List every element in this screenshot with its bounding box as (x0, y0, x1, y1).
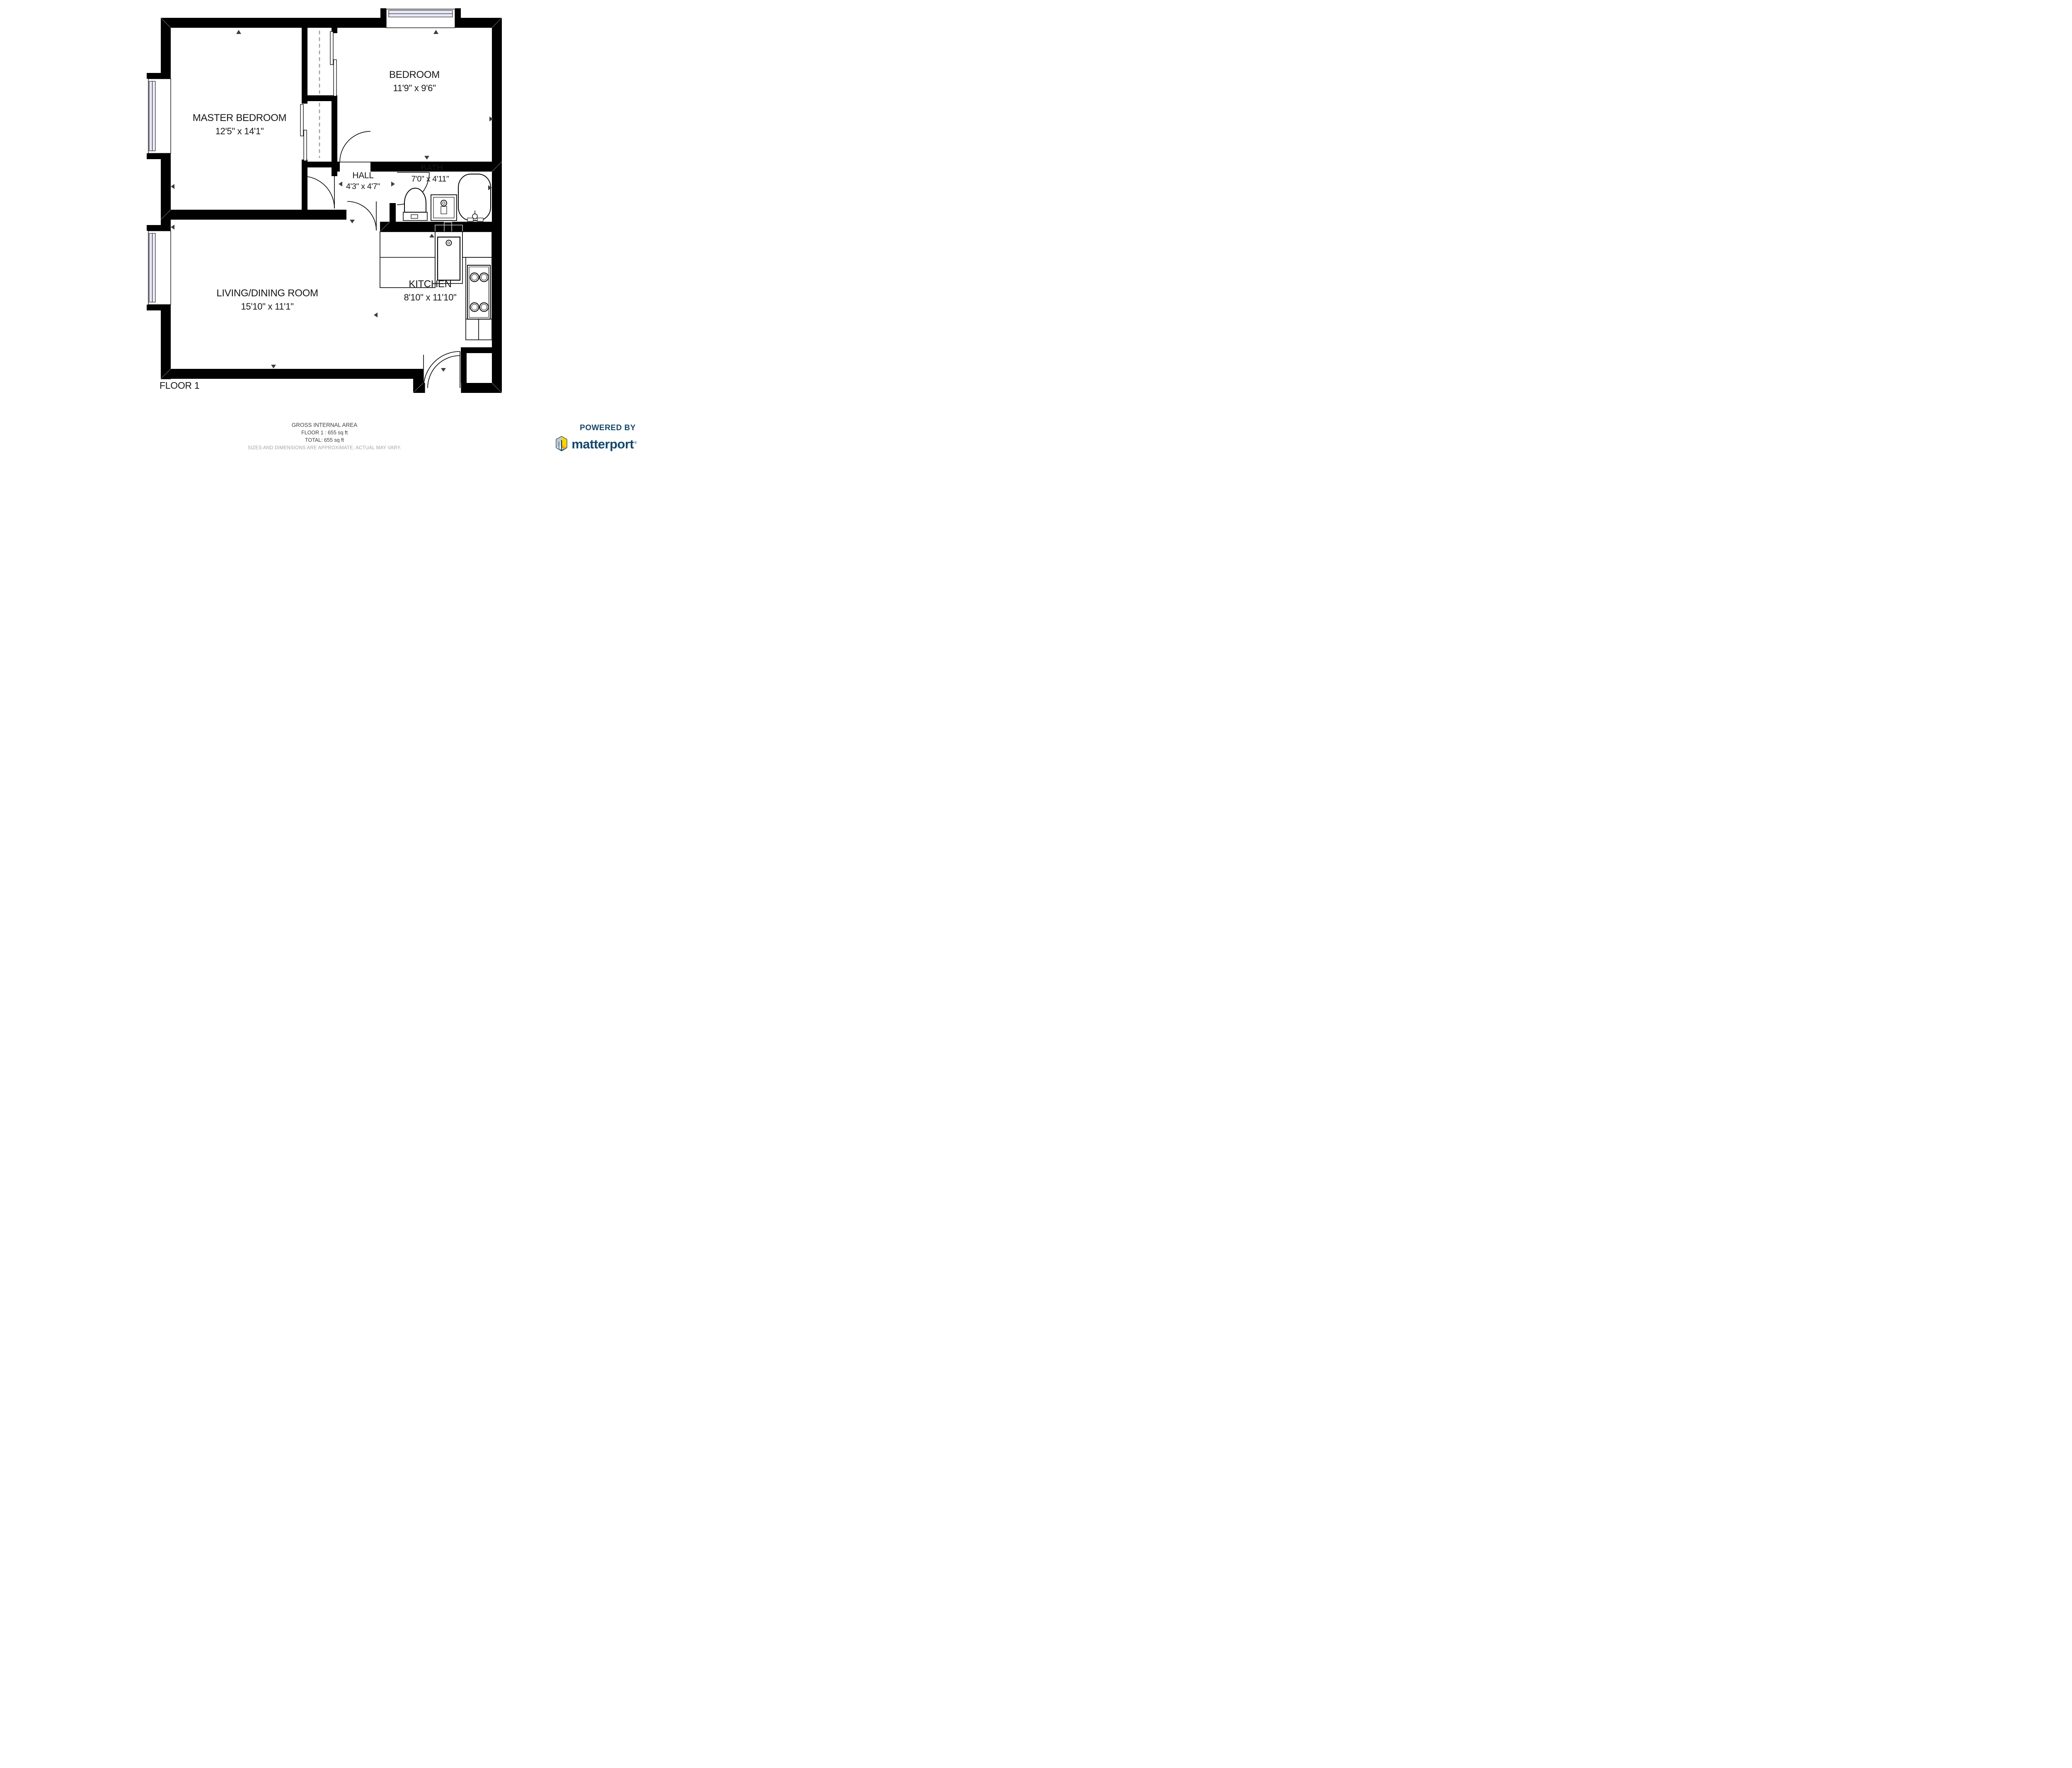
matterport-branding: POWERED BY matterport ® (529, 424, 637, 450)
wall-left (161, 18, 171, 379)
arrow-down-icon (441, 368, 446, 372)
wall-bottom-living (161, 369, 423, 379)
kitchen-sink-icon (438, 237, 460, 280)
wall-bedroom-door-jamb (337, 162, 340, 172)
room-dimensions: 8'10" x 11'10" (404, 292, 456, 303)
bath-sink-icon (431, 195, 457, 220)
sliding-door-panel (334, 60, 336, 96)
door-entry (424, 351, 461, 393)
room-name: LIVING/DINING ROOM (216, 288, 318, 299)
room-label-bedroom: BEDROOM 11'9" x 9'6" (389, 69, 440, 93)
wall-bath-bottom (380, 222, 502, 232)
room-dimensions: 4'3" x 4'7" (346, 182, 380, 191)
stove-icon (467, 265, 490, 319)
wall-right (492, 18, 502, 393)
door-bedroom (340, 131, 370, 162)
room-dimensions: 7'0" x 4'11" (411, 174, 449, 184)
sliding-door-panel (304, 130, 307, 161)
matterport-wordmark: matterport (571, 438, 634, 450)
room-name: HALL (352, 171, 373, 180)
room-dimensions: 12'5" x 14'1" (215, 126, 264, 136)
room-dimensions: 15'10" x 11'1" (241, 301, 293, 312)
arrow-up-icon (236, 30, 241, 34)
sliding-door-panel (330, 31, 333, 65)
bathtub-icon (458, 174, 491, 221)
arrow-left-icon (339, 182, 342, 186)
room-name: MASTER BEDROOM (193, 112, 286, 124)
room-name: KITCHEN (409, 279, 451, 290)
room-label-hall: HALL 4'3" x 4'7" (346, 171, 380, 191)
room-dimensions: 11'9" x 9'6" (393, 83, 436, 93)
window-living-left (147, 225, 171, 310)
wall-closet-left-lower (302, 160, 307, 220)
arrow-down-icon (350, 220, 355, 223)
wall-entry-closet-top (461, 347, 502, 353)
window-bedroom-top (380, 8, 461, 28)
registered-mark: ® (634, 441, 637, 445)
wall-hall-bath (390, 203, 396, 222)
floor-plan-drawing: MASTER BEDROOM 12'5" x 14'1" BEDROOM 11'… (0, 0, 649, 459)
floor-title: FLOOR 1 (160, 380, 199, 391)
arrow-right-icon (391, 182, 395, 186)
wall-closet-right-stub (332, 18, 337, 33)
room-name: BEDROOM (389, 69, 440, 80)
wall-entry-closet-left (461, 347, 467, 393)
arrow-down-icon (271, 365, 276, 368)
arrow-left-icon (171, 225, 174, 230)
room-label-living-dining: LIVING/DINING ROOM 15'10" x 11'1" (216, 288, 318, 312)
arrow-down-icon (424, 156, 429, 160)
sliding-door-panel (300, 104, 303, 136)
wall-hall-left (332, 95, 337, 176)
window-master-left (147, 73, 171, 159)
matterport-cube-icon (554, 436, 569, 451)
door-hall-living (347, 201, 376, 230)
room-label-master-bedroom: MASTER BEDROOM 12'5" x 14'1" (193, 112, 286, 136)
room-label-kitchen: KITCHEN 8'10" x 11'10" (404, 279, 456, 303)
arrow-up-icon (433, 30, 438, 34)
powered-by-text: POWERED BY (529, 424, 636, 433)
wall-closet-left-upper (302, 18, 307, 104)
room-name: BATH (421, 163, 443, 173)
arrow-left-icon (171, 184, 174, 189)
floor-plan-page: MASTER BEDROOM 12'5" x 14'1" BEDROOM 11'… (0, 0, 649, 459)
wall-master-living-divider (161, 210, 346, 220)
arrow-left-icon (374, 312, 378, 317)
toilet-icon (403, 188, 427, 220)
